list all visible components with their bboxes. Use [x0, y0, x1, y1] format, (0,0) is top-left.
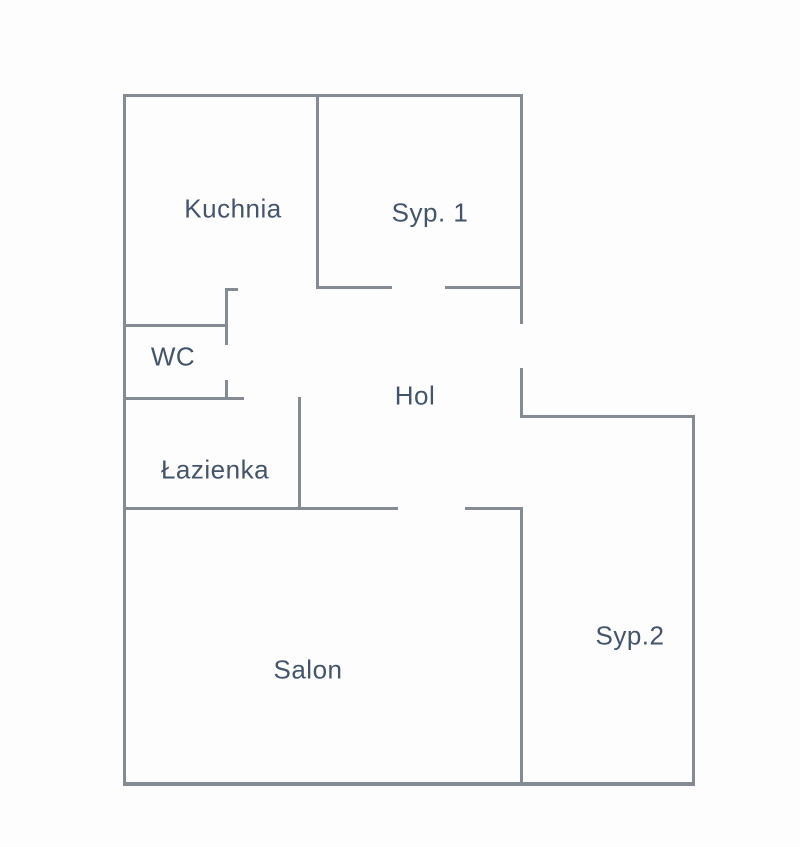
outer-top-wall	[123, 94, 523, 97]
salon-top-wall-left	[123, 507, 398, 510]
room-label-kuchnia: Kuchnia	[184, 194, 281, 225]
room-label-hol: Hol	[395, 381, 436, 412]
room-label-salon: Salon	[274, 655, 343, 686]
kuchnia-syp1-wall	[316, 94, 319, 288]
room-label-syp1: Syp. 1	[392, 198, 469, 229]
floor-plan: KuchniaSyp. 1WCHolŁazienkaSalonSyp.2	[0, 0, 800, 847]
salon-top-wall-right	[465, 507, 523, 510]
right-wall-upper	[520, 94, 523, 324]
outer-left-wall	[123, 94, 126, 785]
room-label-lazienka: Łazienka	[161, 455, 269, 486]
salon-syp2-wall	[520, 507, 523, 785]
lazienka-right-wall	[298, 397, 301, 510]
syp2-top-wall	[520, 415, 695, 418]
wc-bottom-wall	[123, 397, 244, 400]
room-label-syp2: Syp.2	[596, 621, 665, 652]
room-label-wc: WC	[151, 342, 195, 373]
syp1-bottom-wall-right	[445, 286, 523, 289]
syp1-bottom-wall-left	[316, 286, 392, 289]
outer-bottom-wall	[123, 782, 695, 786]
wc-top-wall	[123, 324, 228, 327]
kuchnia-entry-cap	[225, 288, 238, 291]
kuchnia-entry-wall	[225, 289, 228, 345]
right-wall-hol-stub	[520, 368, 523, 418]
outer-right-wall-syp2	[692, 415, 695, 786]
